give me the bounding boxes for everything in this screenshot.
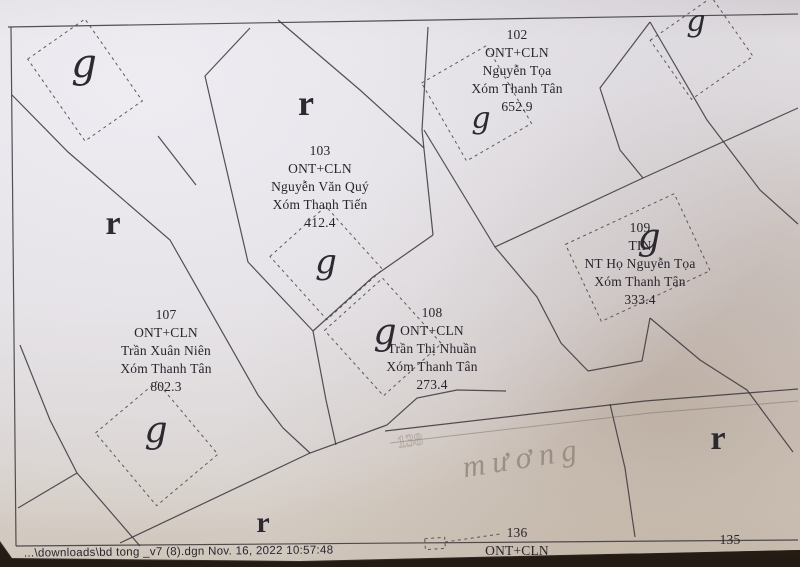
canal-lines xyxy=(385,389,798,443)
boundary-line xyxy=(424,130,495,247)
parcel-hamlet: Xóm Thanh Tân xyxy=(120,360,211,378)
parcel-label-103: 103 ONT+CLN Nguyễn Văn Quý Xóm Thanh Tiế… xyxy=(271,142,369,232)
parcel-label-108: 108 ONT+CLN Trần Thị Nhuần Xóm Thanh Tân… xyxy=(386,304,477,394)
parcel-label-107: 107 ONT+CLN Trần Xuân Niên Xóm Thanh Tân… xyxy=(120,306,211,396)
parcel-landuse: ONT+CLN xyxy=(471,44,562,62)
boundary-line xyxy=(422,27,433,235)
parcel-hamlet: Xóm Thanh Tân xyxy=(386,358,477,376)
land-symbol-g: g xyxy=(373,315,396,351)
parcel-hamlet: Xóm Thanh Tân xyxy=(471,80,562,98)
parcel-owner: Trần Thị Nhuần xyxy=(386,340,477,358)
boundary-line xyxy=(18,473,77,508)
boundary-line xyxy=(158,136,196,185)
faint-parcel-number: 138 xyxy=(396,429,424,452)
boundary-line xyxy=(20,345,77,473)
parcel-area: 802.3 xyxy=(120,378,211,396)
parcel-number: 107 xyxy=(120,306,211,324)
land-symbol-r: r xyxy=(105,207,120,241)
land-symbol-g: g xyxy=(637,220,660,256)
parcel-number: 108 xyxy=(386,304,477,322)
map-paper: 102 ONT+CLN Nguyễn Tọa Xóm Thanh Tân 652… xyxy=(0,0,800,567)
land-use-marker-box xyxy=(425,537,446,549)
parcel-number: 135 xyxy=(720,531,741,549)
canal-edge-line xyxy=(385,389,798,431)
parcel-number: 103 xyxy=(271,142,369,160)
parcel-label-136: 136 ONT+CLN xyxy=(485,524,549,560)
frame-top-line xyxy=(8,14,798,27)
boundary-line xyxy=(588,318,650,371)
parcel-number: 136 xyxy=(485,524,549,542)
parcel-landuse: ONT+CLN xyxy=(120,324,211,342)
photo-background: 102 ONT+CLN Nguyễn Tọa Xóm Thanh Tân 652… xyxy=(0,0,800,567)
parcel-area: 412.4 xyxy=(271,214,369,232)
parcel-area: 273.4 xyxy=(386,376,477,394)
boundary-line xyxy=(120,390,457,543)
parcel-owner: Nguyễn Văn Quý xyxy=(271,178,369,196)
land-symbol-g: g xyxy=(315,245,337,279)
parcel-area: 333.4 xyxy=(584,291,695,309)
land-symbol-r: r xyxy=(256,508,269,538)
parcel-hamlet: Xóm Thanh Tiến xyxy=(271,196,369,214)
boundary-line xyxy=(77,473,140,546)
parcel-owner: Nguyễn Tọa xyxy=(471,62,562,80)
boundary-line xyxy=(600,22,650,178)
parcel-label-135: 135 xyxy=(720,531,741,549)
boundary-line xyxy=(313,331,336,445)
boundary-line xyxy=(12,95,310,453)
frame-left-line xyxy=(11,27,16,546)
parcel-landuse: ONT+CLN xyxy=(386,322,477,340)
frame-bottom-line xyxy=(16,540,798,546)
boundary-line xyxy=(610,404,635,537)
parcel-number: 102 xyxy=(471,26,562,44)
parcel-owner: Trần Xuân Niên xyxy=(120,342,211,360)
land-symbol-g: g xyxy=(686,7,705,37)
land-symbol-r: r xyxy=(710,422,725,456)
land-symbol-g: g xyxy=(471,104,490,134)
land-symbol-r: r xyxy=(298,85,314,121)
boundary-line xyxy=(650,22,798,224)
parcel-hamlet: Xóm Thanh Tân xyxy=(584,273,695,291)
parcel-landuse: ONT+CLN xyxy=(271,160,369,178)
land-symbol-g: g xyxy=(71,44,97,84)
land-symbol-g: g xyxy=(144,413,167,449)
